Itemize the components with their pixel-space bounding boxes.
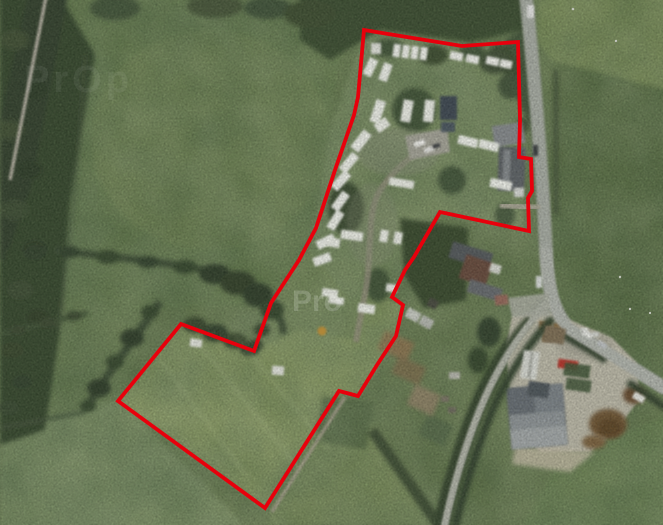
svg-text:Pro: Pro	[292, 285, 342, 318]
svg-text:PrOp: PrOp	[24, 59, 133, 101]
